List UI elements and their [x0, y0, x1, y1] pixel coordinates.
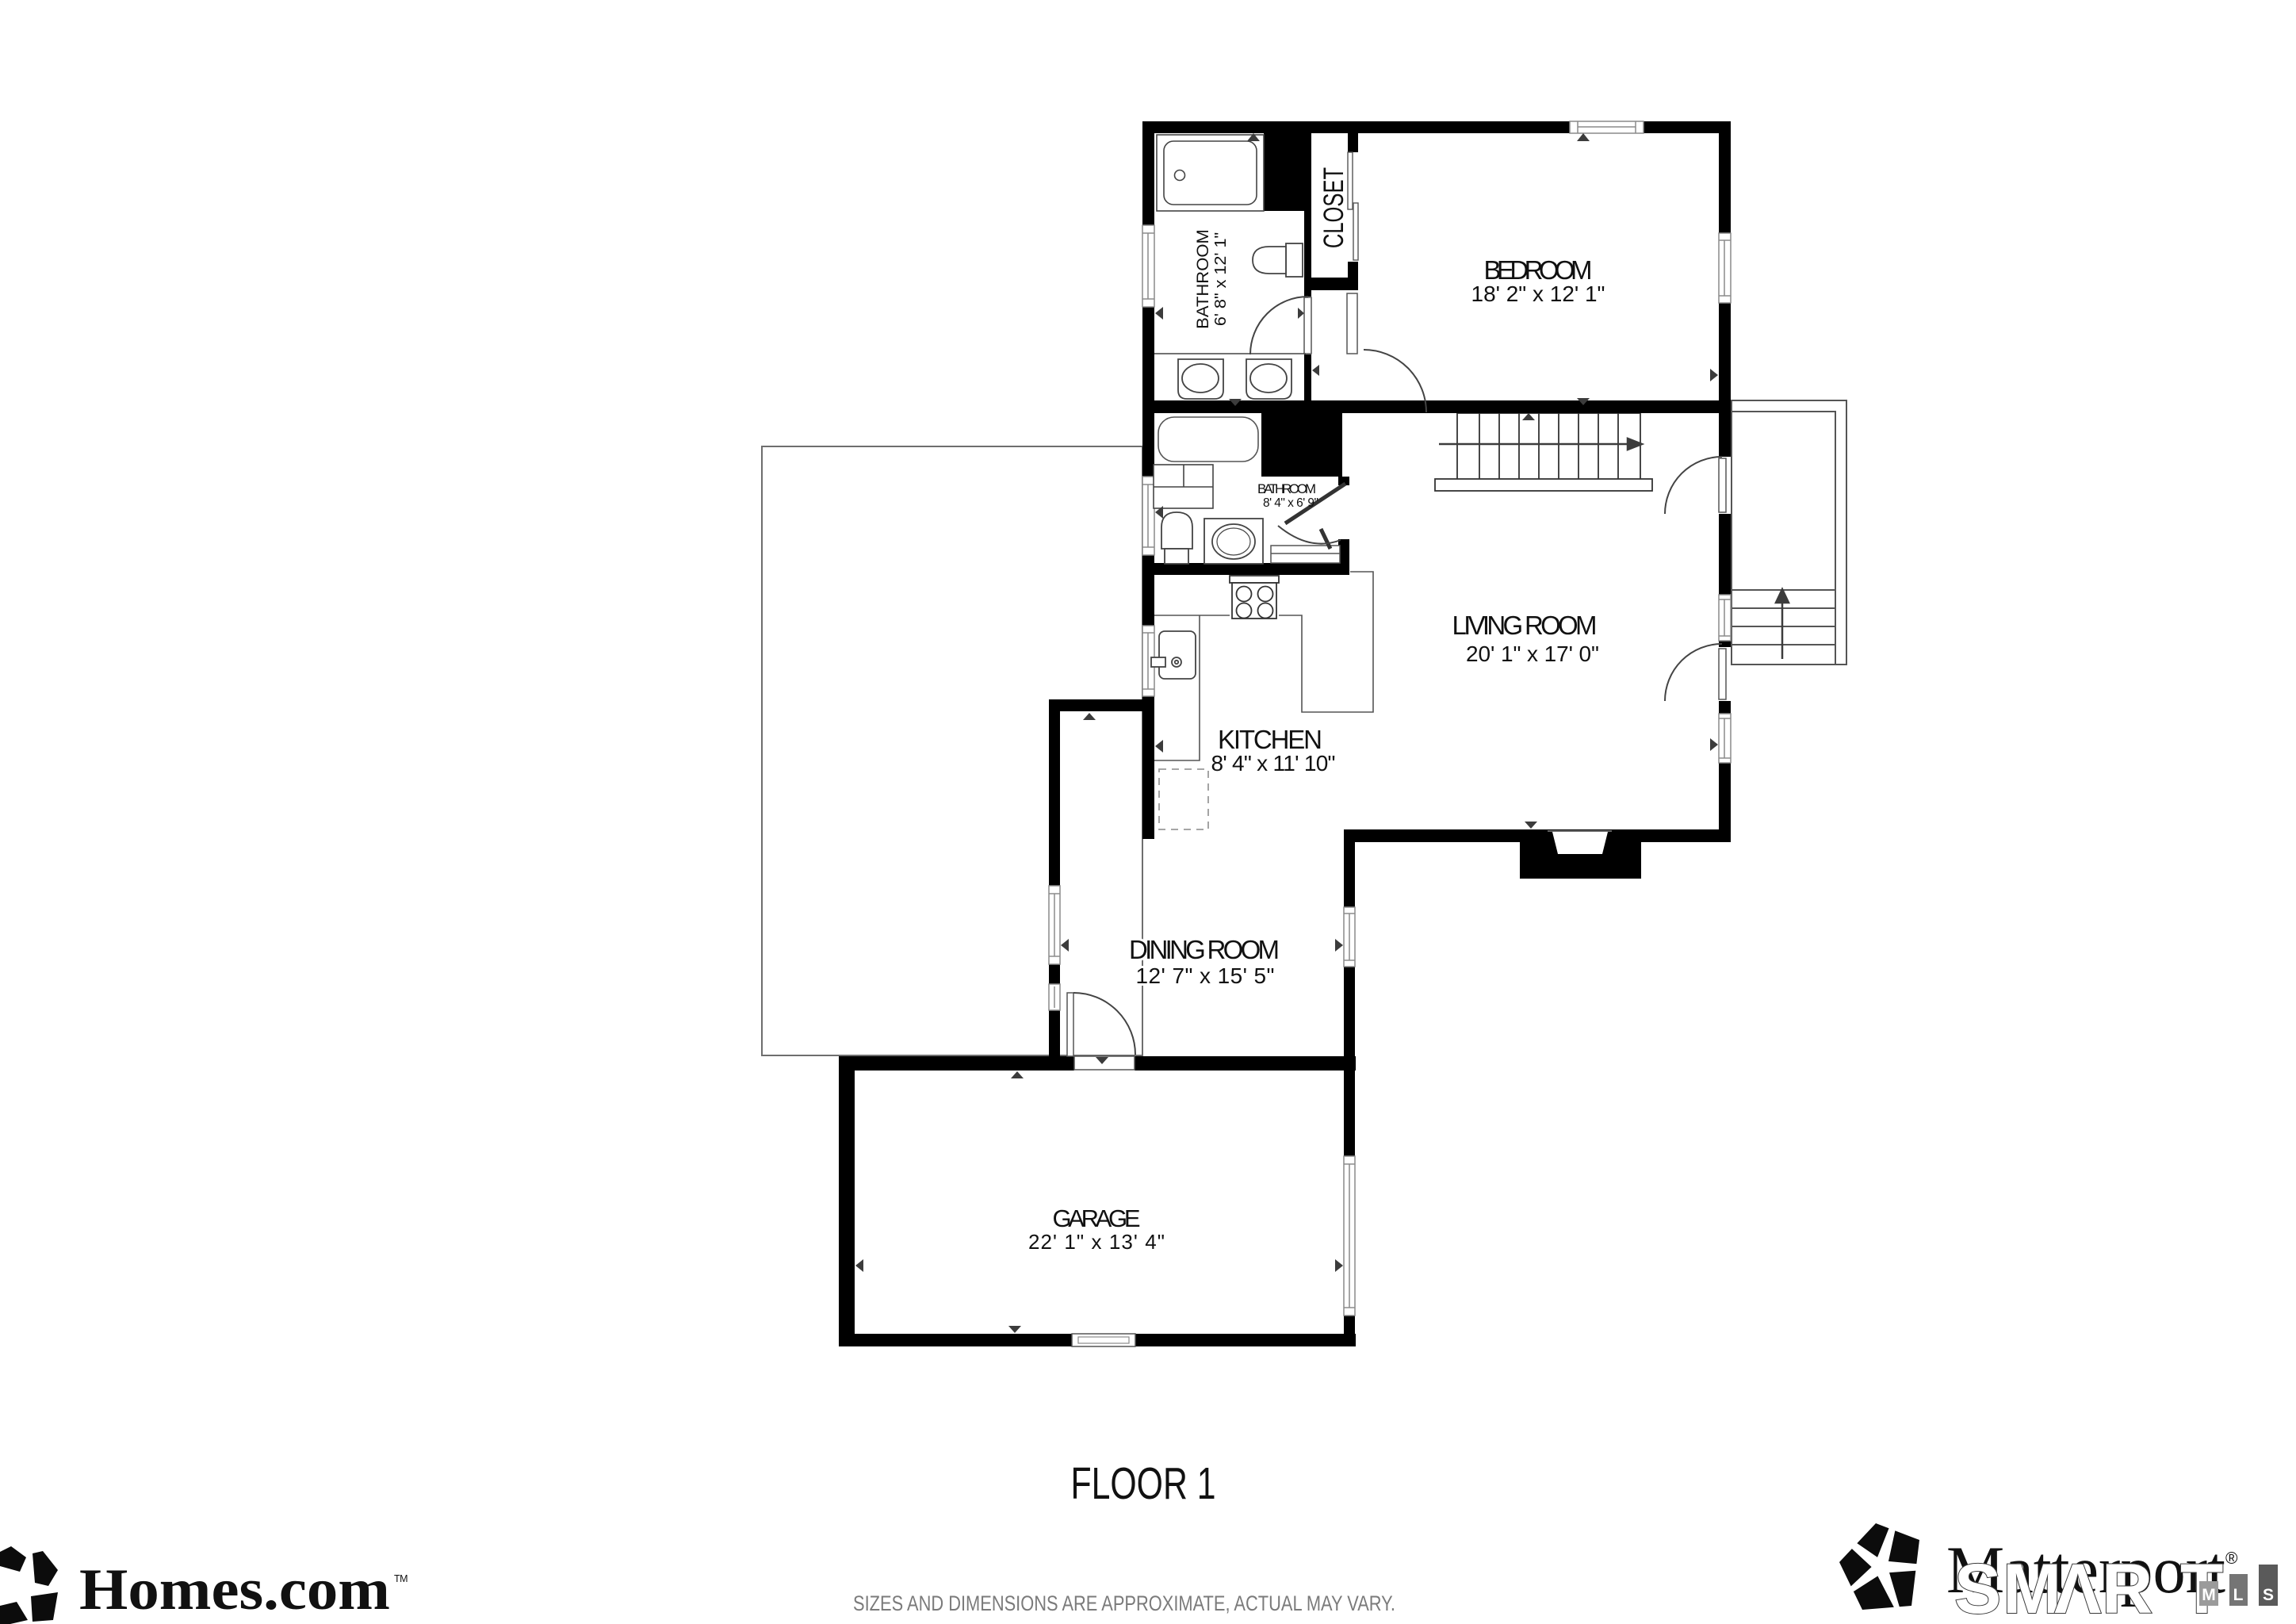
svg-text:DINING ROOM: DINING ROOM — [1129, 935, 1280, 964]
svg-text:18' 2" x 12' 1": 18' 2" x 12' 1" — [1471, 282, 1605, 306]
svg-text:20' 1" x 17' 0": 20' 1" x 17' 0" — [1466, 642, 1599, 666]
svg-text:FLOOR 1: FLOOR 1 — [1071, 1458, 1216, 1509]
svg-text:KITCHEN: KITCHEN — [1218, 725, 1322, 754]
svg-text:CLOSET: CLOSET — [1318, 167, 1349, 248]
svg-text:GARAGE: GARAGE — [1053, 1205, 1141, 1232]
svg-text:6' 8" x 12' 1": 6' 8" x 12' 1" — [1212, 232, 1230, 326]
svg-text:12' 7" x 15' 5": 12' 7" x 15' 5" — [1136, 963, 1275, 988]
svg-text:LIVING ROOM: LIVING ROOM — [1452, 611, 1598, 640]
svg-text:BATHROOM: BATHROOM — [1257, 481, 1316, 496]
svg-text:M: M — [2202, 1586, 2216, 1604]
svg-text:BEDROOM: BEDROOM — [1484, 255, 1593, 285]
svg-text:®: ® — [2225, 1549, 2238, 1568]
svg-text:L: L — [2233, 1586, 2244, 1604]
svg-text:8' 4" x 6' 9": 8' 4" x 6' 9" — [1263, 496, 1318, 510]
svg-text:22' 1" x 13' 4": 22' 1" x 13' 4" — [1028, 1230, 1165, 1254]
svg-text:Homes.com: Homes.com — [79, 1557, 390, 1622]
svg-text:BATHROOM: BATHROOM — [1193, 229, 1211, 329]
svg-text:TM: TM — [394, 1573, 408, 1584]
svg-text:8' 4" x 11' 10": 8' 4" x 11' 10" — [1211, 751, 1336, 776]
svg-text:M: M — [2003, 1549, 2061, 1624]
svg-text:R: R — [2102, 1549, 2152, 1624]
svg-text:Λ: Λ — [2054, 1549, 2101, 1624]
svg-text:SIZES AND DIMENSIONS ARE APPRO: SIZES AND DIMENSIONS ARE APPROXIMATE, AC… — [853, 1591, 1395, 1615]
svg-text:S: S — [1954, 1549, 2001, 1624]
svg-text:S: S — [2263, 1586, 2274, 1604]
